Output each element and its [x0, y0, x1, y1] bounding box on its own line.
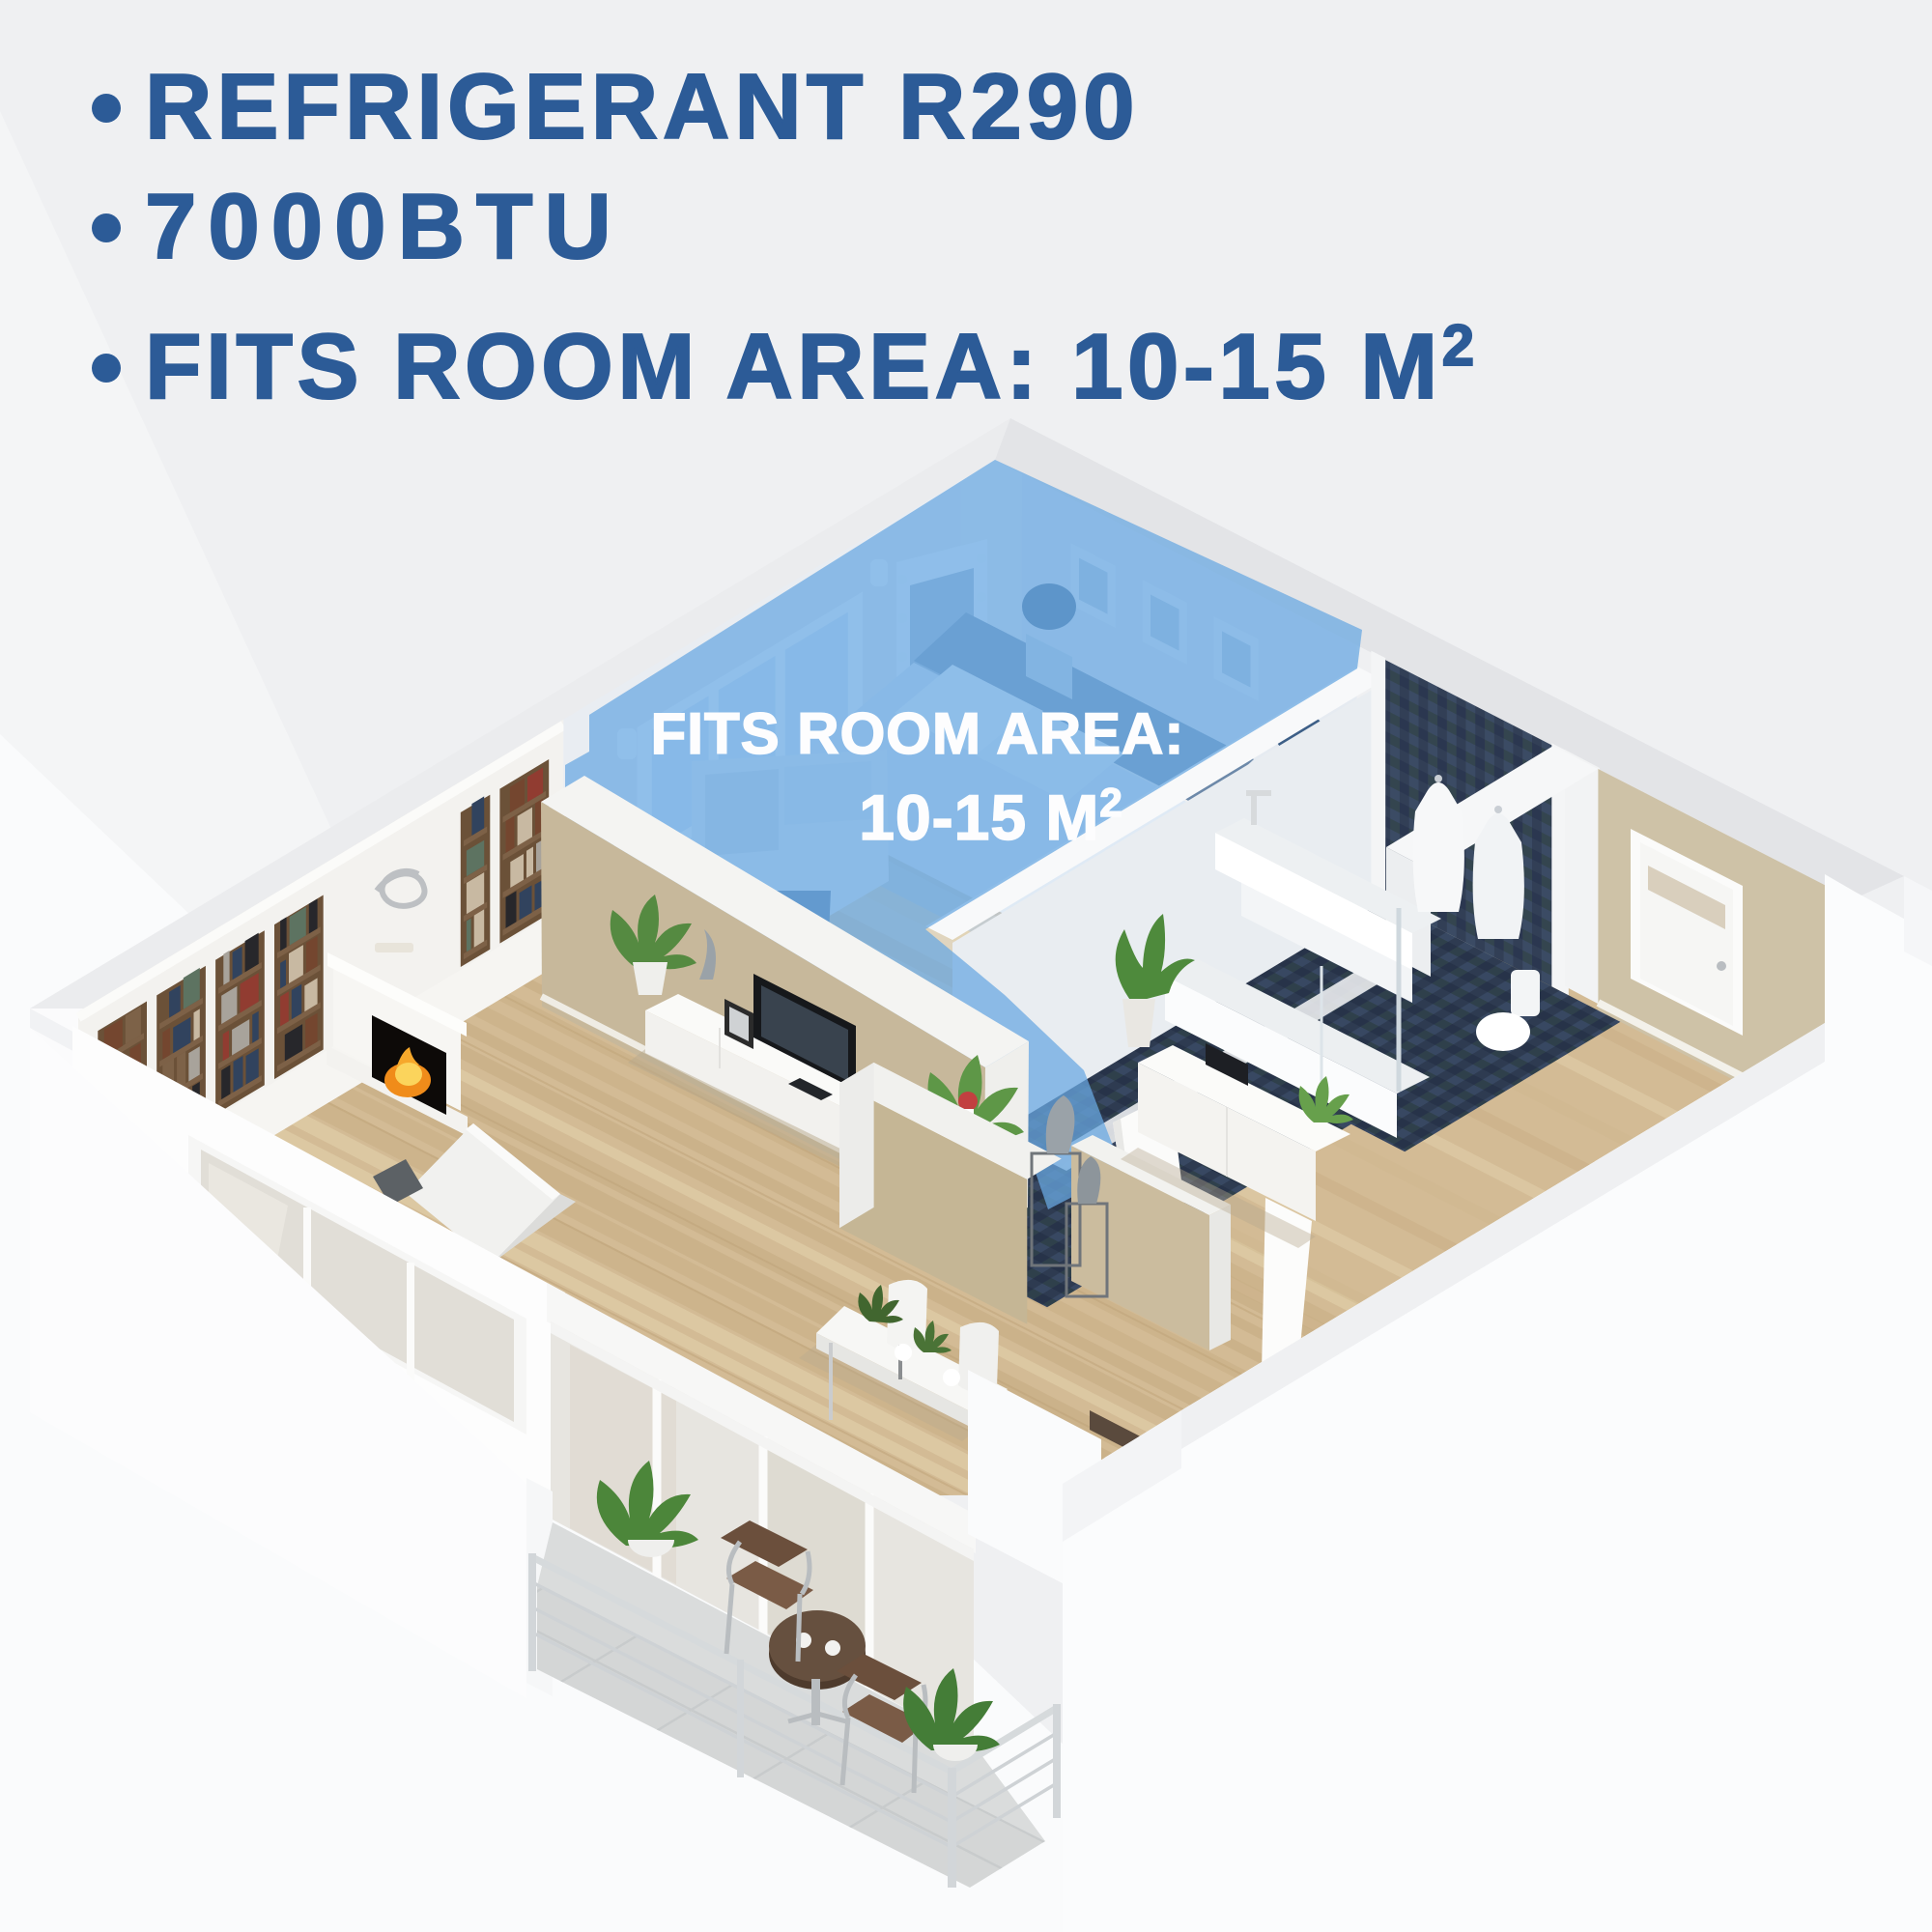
svg-text:10-15 M2: 10-15 M2 [859, 780, 1122, 853]
svg-text:7000BTU: 7000BTU [145, 175, 623, 278]
svg-text:FITS ROOM AREA: 10-15 M2: FITS ROOM AREA: 10-15 M2 [145, 313, 1479, 418]
svg-text:REFRIGERANT R290: REFRIGERANT R290 [145, 55, 1140, 158]
svg-text:FITS ROOM AREA:: FITS ROOM AREA: [651, 701, 1185, 766]
